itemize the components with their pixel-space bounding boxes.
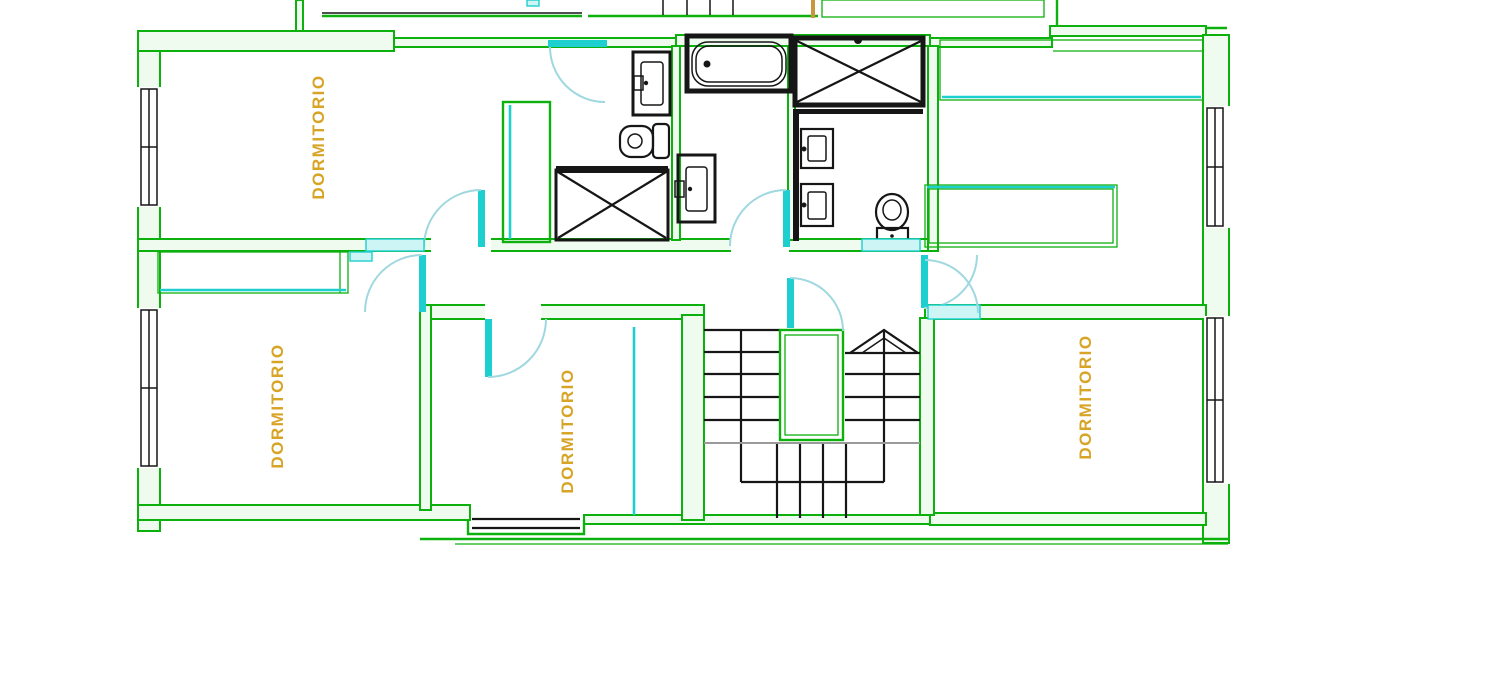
sink-icon <box>633 52 670 115</box>
floor-plan-canvas: DORMITORIO DORMITORIO DORMITORIO DORMITO… <box>0 0 1500 690</box>
bathA-column <box>503 102 550 242</box>
shower-x-icon <box>556 166 668 240</box>
bathroom-fixtures <box>556 36 923 243</box>
wood-jamb <box>811 0 815 18</box>
door-arc-icon <box>485 304 546 377</box>
door-threshold <box>862 239 920 251</box>
stair-treads <box>704 330 920 518</box>
door-arc-icon <box>424 190 491 252</box>
wall-top-mid <box>394 38 676 47</box>
walls <box>138 26 1229 544</box>
wall-bottom-mid <box>584 515 930 524</box>
door-arc-icon <box>730 190 790 252</box>
wall-top-right-a <box>930 38 1052 47</box>
stairs-icon <box>704 330 920 518</box>
wall-stairs-right <box>920 318 934 515</box>
door-arc-icon <box>365 239 426 312</box>
door-arc-icon <box>787 278 843 331</box>
wall-bedrooms-left-divider <box>420 305 431 510</box>
room-label-top-left: DORMITORIO <box>309 74 328 199</box>
room-label-bottom-center: DORMITORIO <box>558 368 577 493</box>
toilet-icon <box>620 124 669 158</box>
wall-top-left <box>138 31 394 51</box>
wall-top-right-b <box>1050 26 1206 36</box>
window-icon <box>1204 316 1230 484</box>
desk-icon <box>925 185 1117 247</box>
room-label-bottom-left: DORMITORIO <box>268 343 287 468</box>
wall-center-room-right <box>682 315 704 520</box>
corridor-bottom-wall-west <box>420 305 704 319</box>
toilet-icon <box>876 194 908 243</box>
room-label-bottom-right: DORMITORIO <box>1076 334 1095 459</box>
stairwell-void <box>780 330 843 440</box>
counter-edge <box>795 109 923 114</box>
window-icon <box>472 519 580 528</box>
door-arc-icon <box>548 40 607 102</box>
sink-icon <box>801 129 833 168</box>
counter-edge <box>793 109 799 241</box>
closet-icon <box>158 252 348 293</box>
wall-bottom-right <box>930 513 1206 525</box>
window-icon <box>136 308 162 468</box>
door-arc-icon <box>925 260 980 319</box>
window-icon <box>1204 106 1230 228</box>
window-icon <box>136 87 162 207</box>
sink-icon <box>801 184 833 226</box>
wardrobe-icon <box>940 40 1203 100</box>
terrace-cyan-tick <box>527 0 539 6</box>
corridor-west-cyan-band <box>350 252 372 261</box>
